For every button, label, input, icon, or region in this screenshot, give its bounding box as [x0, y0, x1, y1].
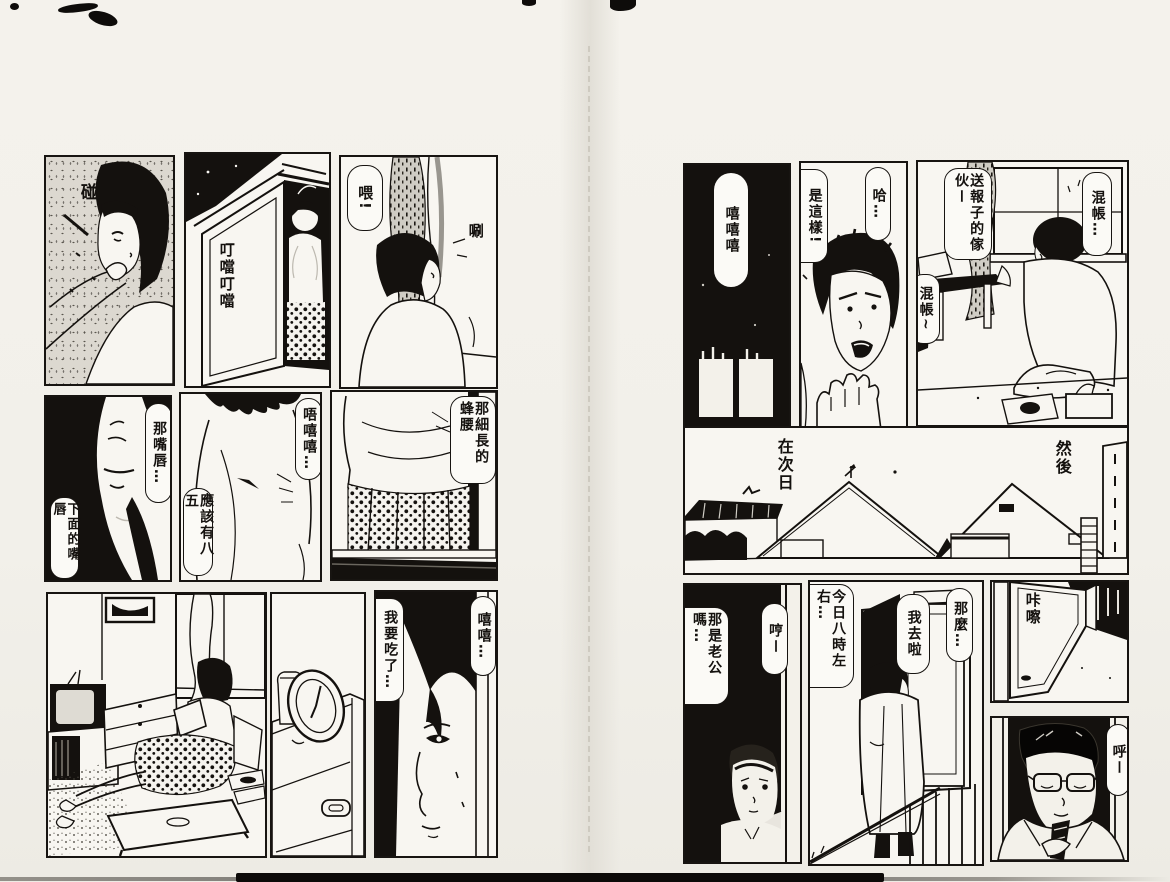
speech-bubble-85: 應該有八五 [183, 488, 213, 576]
panel-window: 叮噹叮噹 [184, 152, 331, 388]
panel-chest: 唔嘻嘻… 應該有八五 [179, 392, 322, 582]
scan-artifact-bottom-band [236, 873, 884, 882]
speech-bubble-hehe: 唔嘻嘻… [295, 398, 322, 480]
makeup-art [46, 157, 173, 384]
panel-sigh: 呼ー [990, 716, 1129, 862]
scan-artifact [522, 0, 536, 6]
speech-bubble-well-then: 那麼… [946, 588, 973, 662]
panel-door-click: 咔嚓 [990, 580, 1129, 703]
speech-bubble-is-that-husband: 那是老公嗎… [683, 607, 729, 705]
panel-doorway-peek: 哼ー 那是老公嗎… [683, 583, 802, 864]
speech-bubble-lower-lips: 下面的嘴唇 [50, 497, 79, 579]
panel-waist: 那細長的蜂腰 [330, 390, 498, 581]
speech-bubble-hehehe: 嘻嘻嘻 [714, 173, 748, 287]
page-fold [588, 46, 590, 852]
panel-night: 嘻嘻嘻 [683, 163, 791, 431]
speech-bubble-sigh: 呼ー [1106, 724, 1129, 796]
panel-lips: 那嘴唇… 下面的嘴唇 [44, 395, 172, 582]
sfx-thump: 碰 [77, 183, 95, 202]
speech-bubble-paperboy: 送報子的傢伙ー [944, 168, 992, 260]
speech-bubble-eat-you: 我要吃了… [376, 598, 404, 702]
clock-art [272, 594, 364, 856]
panel-makeup: 碰 [44, 155, 175, 386]
speech-bubble-eight-oclock: 今日八時左右… [808, 584, 854, 688]
panel-clock [270, 592, 366, 858]
room-art [48, 594, 265, 856]
sfx-swish: 唰 [467, 223, 483, 240]
page-fold-shade [560, 0, 620, 882]
panel-table: 送報子的傢伙ー 混帳~ 混帳… [916, 160, 1129, 427]
speech-bubble-damn-2: 混帳… [1082, 172, 1112, 256]
scan-artifact [610, 0, 636, 11]
panel-shock: 是這樣! 哈… [799, 161, 908, 432]
speech-bubble-hmph: 哼ー [761, 603, 788, 675]
panel-peeking-face: 我要吃了… 嘻嘻… [374, 590, 498, 858]
speech-bubble-wasp-waist: 那細長的蜂腰 [450, 396, 496, 484]
speech-bubble-hey: 喂! [347, 165, 383, 231]
sfx-click: 咔嚓 [1024, 592, 1040, 626]
window-art [186, 154, 329, 386]
speech-bubble-im-off: 我去啦 [896, 594, 930, 674]
speech-bubble-so-thats-it: 是這樣! [801, 169, 828, 263]
panel-skyline: 在次日 然後 [683, 426, 1129, 575]
speech-bubble-damn: 混帳~ [916, 274, 940, 344]
caption-next-day: 在次日 [775, 438, 792, 492]
panel-leaving: 那麼… 我去啦 今日八時左右… [808, 580, 984, 866]
scan-artifact [87, 8, 119, 29]
panel-room [46, 592, 267, 858]
speech-bubble-those-lips: 那嘴唇… [145, 403, 172, 503]
panel-curtain-man: 喂! 唰 [339, 155, 498, 389]
sfx-clatter: 叮噹叮噹 [218, 242, 234, 310]
door-click-art [992, 582, 1127, 701]
caption-then: 然後 [1053, 440, 1070, 476]
speech-bubble-giggle: 嘻嘻… [470, 596, 496, 676]
speech-bubble-ha: 哈… [865, 167, 891, 241]
manga-spread-scan: 碰 叮噹叮噹 [0, 0, 1170, 882]
scan-artifact [10, 3, 19, 10]
